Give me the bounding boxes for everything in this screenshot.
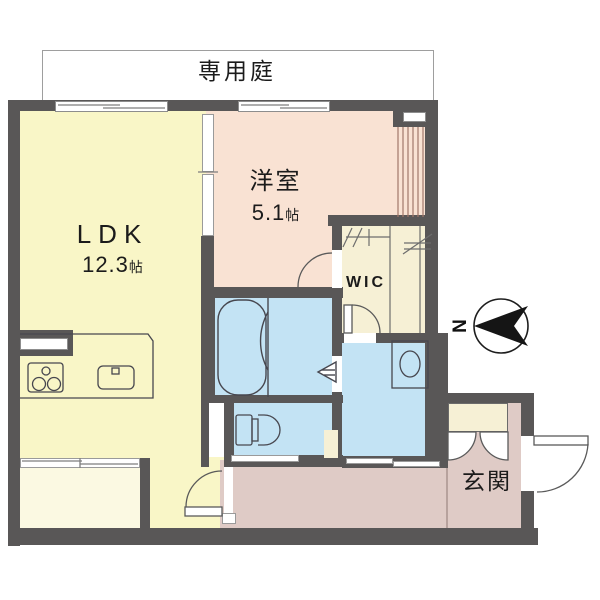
north-arrow-icon	[474, 306, 528, 346]
wall-bottom	[8, 528, 538, 545]
wall-closet-right	[140, 458, 150, 530]
ldk-size-value: 12.3	[82, 252, 129, 277]
wall-western-bottom	[201, 287, 343, 298]
room-bathroom	[206, 290, 340, 400]
entrance-label: 玄関	[440, 468, 534, 494]
sliding-door-toilet	[231, 455, 299, 462]
sliding-door-ldk-western-upper	[202, 114, 214, 172]
doorway-wic	[344, 333, 376, 343]
door-toilet-side	[324, 430, 338, 458]
garden-label: 専用庭	[42, 58, 432, 84]
hallway	[220, 460, 452, 532]
ldk-label: LDK	[30, 220, 195, 250]
wall-left	[8, 100, 20, 546]
compass-circle	[474, 299, 528, 353]
door-jamb	[222, 513, 236, 524]
north-label: N	[450, 319, 471, 333]
ldk-size-unit: 帖	[129, 259, 143, 275]
entrance-door-arc	[537, 444, 588, 492]
western-room-label: 洋室	[193, 168, 358, 196]
entrance-door-leaf	[534, 436, 588, 445]
window-small-top-right	[403, 112, 426, 122]
pipe-space	[208, 400, 225, 457]
wall-ps-left	[201, 395, 209, 467]
closet	[20, 460, 142, 530]
window-western	[238, 101, 330, 112]
western-room-size: 5.1帖	[193, 200, 358, 225]
compass: N	[450, 299, 528, 353]
wic-label: WIC	[333, 274, 399, 292]
window-kitchen	[20, 338, 68, 350]
shoe-cabinet	[448, 403, 508, 432]
western-size-unit: 帖	[285, 207, 299, 223]
room-washroom	[336, 337, 436, 463]
window-ldk	[55, 101, 168, 112]
floor-plan: N 専用庭 LDK 12.3帖 洋室 5.1帖 WIC 玄関	[0, 0, 600, 600]
room-toilet	[224, 398, 340, 460]
sliding-door-closet	[20, 458, 140, 468]
wall-bath-left	[201, 292, 215, 403]
sliding-door-washroom-b	[393, 461, 440, 467]
wall-toilet-top	[201, 395, 343, 403]
doorway-bathroom	[332, 356, 342, 392]
sliding-door-washroom-a	[346, 458, 393, 464]
western-size-value: 5.1	[252, 200, 286, 225]
wall-entrance-top	[438, 393, 534, 403]
ldk-size: 12.3帖	[30, 252, 195, 277]
doorway-ldk-hall	[224, 467, 233, 514]
